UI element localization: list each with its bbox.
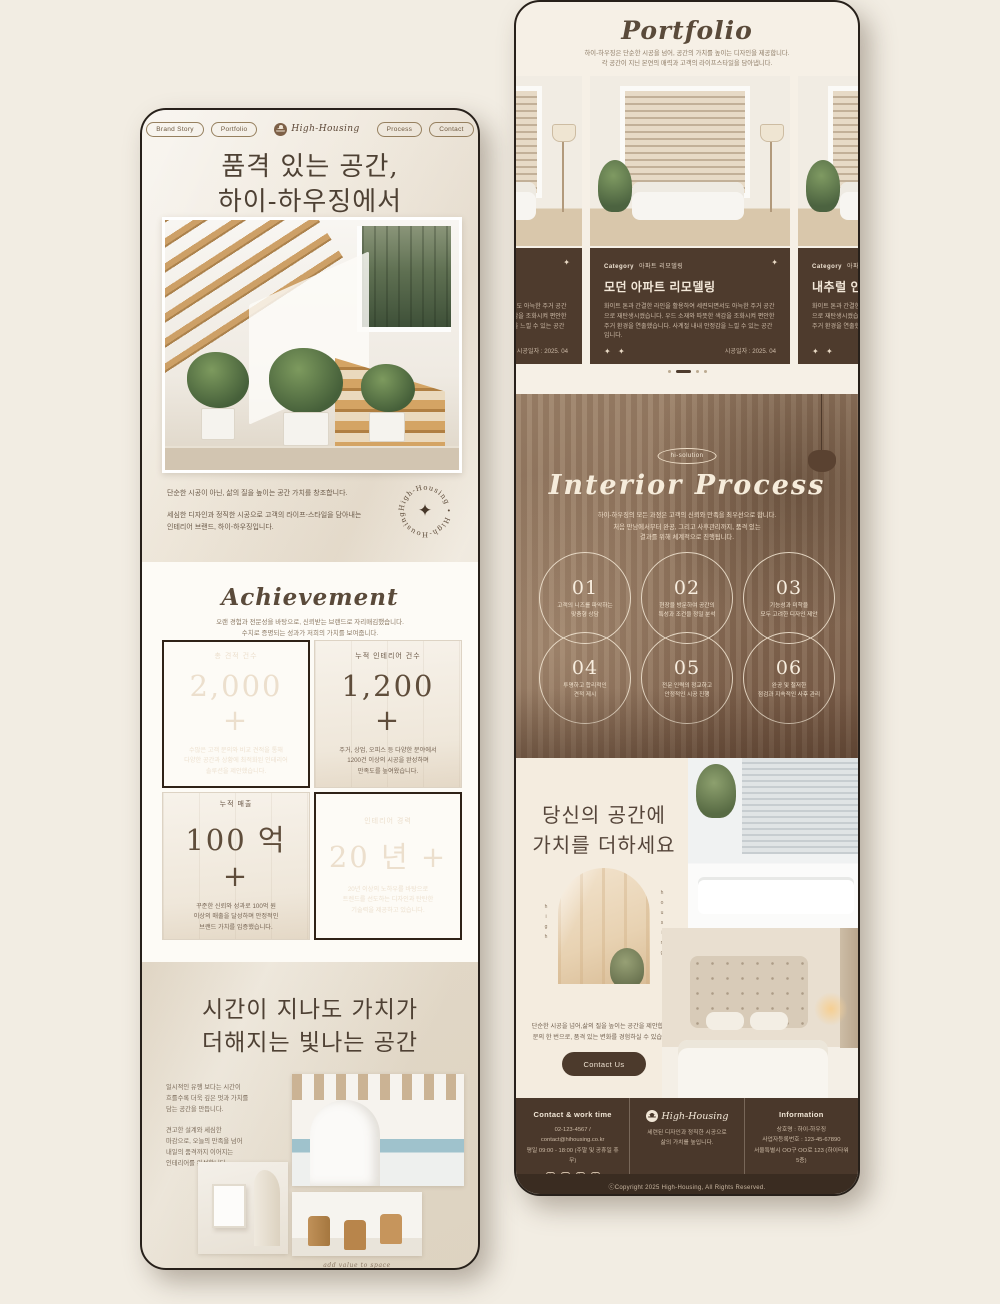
hero-image — [162, 217, 462, 473]
stat-value: 100 억 + — [173, 817, 299, 893]
value-section-title: 시간이 지나도 가치가 더해지는 빛나는 공간 — [142, 994, 478, 1061]
copyright-bar: ⓒCopyright 2025 High-Housing, All Rights… — [516, 1174, 858, 1196]
process-step-2: 02 현장을 방문하여 공간의 특성과 조건을 정밀 분석 — [641, 552, 733, 644]
plant — [598, 160, 632, 212]
hanging-lamp-icon — [808, 450, 836, 472]
footer-info-title: Information — [753, 1110, 850, 1119]
process-subtitle-2: 처음 만남에서부터 완공, 그리고 사후관리까지, 품격 있는 결과를 위해 체… — [516, 523, 858, 543]
process-subtitle-1: 하이-하우징의 모든 과정은 고객의 신뢰와 만족을 최우선으로 합니다. — [516, 510, 858, 519]
stat-card-projects: 누적 인테리어 건수 1,200 + 주거, 상업, 오피스 등 다양한 분야에… — [314, 640, 462, 788]
plant — [806, 160, 840, 212]
brand-logo[interactable]: High-Housing — [274, 123, 359, 136]
floor — [165, 446, 459, 470]
portfolio-card-title: 모던 아파트 리모델링 — [604, 278, 776, 295]
sunset-logo-icon — [274, 123, 287, 136]
bedroom-photo — [662, 928, 858, 1098]
bathroom-photo — [688, 758, 858, 928]
process-step-1: 01 고객의 니즈를 파악하는 맞춤형 상담 — [539, 552, 631, 644]
sofa — [514, 182, 536, 220]
step-caption: 전문 인력의 정교하고 안정적인 시공 진행 — [662, 682, 712, 700]
white-room-photo — [198, 1162, 288, 1254]
hero-paragraph-1: 단순한 시공이 아닌, 삶의 질을 높이는 공간 가치를 창조합니다. — [167, 488, 372, 501]
footer-info-column: Information 상호명 : 하이-하우징 사업자등록번호 : 123-4… — [745, 1098, 858, 1174]
hero-paragraph-2: 세심한 디자인과 정직한 시공으로 고객의 라이프-스타일을 담아내는 인테리어… — [167, 510, 372, 535]
hero-copy: 단순한 시공이 아닌, 삶의 질을 높이는 공간 가치를 창조합니다. 세심한 … — [167, 488, 372, 535]
process-title: Interior Process — [516, 470, 858, 501]
stat-card-revenue: 누적 매출 100 억 + 꾸준한 신뢰와 성과로 100억 원 이상의 매출을… — [162, 792, 310, 940]
achievement-subtitle: 오랜 경험과 전문성을 바탕으로, 신뢰받는 브랜드로 자리매김했습니다. 수치… — [142, 618, 478, 639]
stat-card-experience: 인테리어 경력 20 년 + 20년 이상의 노하우를 바탕으로 트렌드를 선도… — [314, 792, 462, 940]
step-caption: 고객의 니즈를 파악하는 맞춤형 상담 — [557, 602, 613, 620]
cta-title: 당신의 공간에 가치를 더하세요 — [516, 800, 692, 860]
plant — [187, 352, 249, 408]
footer-contact-column: Contact & work time 02-123-4567 / contac… — [516, 1098, 629, 1174]
window-trees — [357, 226, 451, 332]
plant — [269, 348, 343, 414]
hero-title: 품격 있는 공간, 하이-하우징에서 — [142, 150, 478, 220]
portfolio-card-title: 내추럴 인테리어 — [812, 278, 860, 295]
step-caption: 투명하고 합리적인 견적 제시 — [563, 682, 606, 700]
portfolio-card-body: 화이트 톤과 간결한 라인을 활용하여 세련되면서도 아늑한 주거 공간으로 재… — [812, 302, 860, 331]
sofa — [840, 182, 860, 220]
process-step-6: 06 완공 및 철저한 점검과 지속적인 사후 관리 — [743, 632, 835, 724]
sparkle-icon: ✦ — [563, 258, 570, 267]
sparkle-star-icon: ✦ — [396, 482, 454, 540]
plant — [361, 364, 415, 412]
staircase-photo — [165, 220, 459, 470]
footer-brand-name: High-Housing — [662, 1111, 729, 1122]
portfolio-card[interactable]: Category아파트 리모델링 내추럴 인테리어 화이트 톤과 간결한 라인을… — [798, 248, 860, 364]
step-caption: 기능성과 미학을 모두 고려한 디자인 제안 — [760, 602, 817, 620]
copyright-text: ⓒCopyright 2025 High-Housing, All Rights… — [608, 1182, 765, 1191]
category-value: 아파트 리모델링 — [847, 264, 860, 270]
stat-label: 누적 인테리어 건수 — [355, 651, 420, 661]
portfolio-photo — [798, 76, 860, 246]
sofa — [632, 182, 744, 220]
portfolio-date: 시공일자 : 2025. 04 — [517, 346, 568, 355]
footer-contact-title: Contact & work time — [524, 1110, 621, 1119]
value-paragraph-1: 일시적인 유행 보다는 시간이 흐를수록 더욱 깊은 멋과 가치를 담는 공간을… — [166, 1082, 282, 1115]
category-label: Category — [604, 264, 634, 270]
footer: Contact & work time 02-123-4567 / contac… — [516, 1098, 858, 1174]
stat-desc: 20년 이상의 노하우를 바탕으로 트렌드를 선도하는 디자인과 탄탄한 기술력… — [343, 885, 434, 916]
arched-photo — [558, 868, 650, 984]
process-steps: 01 고객의 니즈를 파악하는 맞춤형 상담 02 현장을 방문하여 공간의 특… — [539, 552, 835, 726]
category-value: 아파트 리모델링 — [639, 264, 683, 270]
brand-name: High-Housing — [291, 124, 359, 134]
carousel-dot[interactable] — [668, 370, 671, 373]
sparkle-icon: ✦ — [812, 347, 819, 356]
footer-info-line1: 상호명 : 하이-하우징 — [753, 1125, 850, 1135]
sparkle-icon: ✦ — [618, 347, 625, 356]
portfolio-carousel[interactable]: Category아파트 리모델링 모던 아파트 리모델링 화이트 톤과 간결한 … — [514, 76, 860, 364]
portfolio-photo — [514, 76, 582, 246]
stat-value: 1,200 + — [325, 669, 451, 737]
step-number: 04 — [572, 657, 598, 679]
pillows — [706, 1012, 744, 1030]
step-caption: 현장을 방문하여 공간의 특성과 조건을 정밀 분석 — [658, 602, 715, 620]
curtain — [840, 928, 858, 1048]
portfolio-date: 시공일자 : 2025. 04 — [725, 346, 776, 355]
category-label: Category — [812, 264, 842, 270]
nav-brand-story[interactable]: Brand Story — [146, 122, 204, 137]
portfolio-category: Category아파트 리모델링 — [514, 261, 568, 270]
hi-solution-badge: hi-solution — [658, 448, 717, 464]
bed-sheet — [678, 1040, 828, 1098]
top-nav: Brand Story Portfolio High-Housing Proce… — [142, 119, 478, 139]
portfolio-category: Category아파트 리모델링 — [604, 261, 776, 270]
footer-brand-column: High-Housing 세련된 디자인과 정직한 시공으로 삶의 가치를 높입… — [629, 1098, 744, 1174]
step-number: 05 — [674, 657, 700, 679]
achievement-grid: 총 견적 건수 2,000 + 수많은 고객 문의와 비교 견적을 통해 다양한… — [162, 640, 462, 940]
carousel-dot[interactable] — [696, 370, 699, 373]
sparkle-icon: ✦ — [771, 258, 778, 267]
stat-value: 20 년 + — [329, 834, 447, 876]
sparkle-icon: ✦ — [604, 347, 611, 356]
portfolio-item[interactable]: Category아파트 리모델링 모던 아파트 리모델링 화이트 톤과 간결한 … — [590, 76, 790, 364]
portfolio-card-body: 화이트 톤과 간결한 라인을 활용하여 세련되면서도 아늑한 주거 공간으로 재… — [604, 302, 776, 341]
step-number: 02 — [674, 577, 700, 599]
planter-pot — [201, 408, 235, 440]
portfolio-category: Category아파트 리모델링 — [812, 261, 860, 270]
footer-contact-line2: 평일 09:00 - 18:00 (주말 및 공휴일 휴무) — [524, 1146, 621, 1167]
portfolio-subtitle: 하이-하우징은 단순한 시공을 넘어, 공간의 가치를 높이는 디자인을 제공합… — [516, 49, 858, 69]
footer-info-line3: 서울특별시 OO구 OO로 123 (하이타워 5층) — [753, 1146, 850, 1167]
plant — [696, 764, 736, 818]
lamp-glow — [814, 992, 848, 1026]
sunset-logo-icon — [646, 1110, 658, 1122]
vertical-text-high: high — [543, 904, 549, 944]
stat-label: 누적 매출 — [220, 799, 253, 809]
achievement-section: Achievement 오랜 경험과 전문성을 바탕으로, 신뢰받는 브랜드로 … — [142, 562, 478, 962]
stat-value: 2,000 + — [174, 669, 298, 737]
white-building-photo — [292, 1074, 464, 1186]
nav-process[interactable]: Process — [377, 122, 423, 137]
cta-section: 당신의 공간에 가치를 더하세요 high housing 단순한 시공을 넘어… — [516, 758, 858, 1098]
process-section: hi-solution Interior Process 하이-하우징의 모든 … — [516, 394, 858, 758]
portfolio-card-title: 모던 아파트 리모델링 — [514, 278, 568, 295]
stat-desc: 주거, 상업, 오피스 등 다양한 분야에서 1200건 이상의 시공을 완성하… — [339, 746, 436, 777]
left-page: Brand Story Portfolio High-Housing Proce… — [140, 108, 480, 1270]
footer-brand-lockup: High-Housing — [638, 1110, 735, 1122]
achievement-title: Achievement — [142, 584, 478, 611]
value-copy: 일시적인 유행 보다는 시간이 흐를수록 더욱 깊은 멋과 가치를 담는 공간을… — [166, 1082, 282, 1169]
step-caption: 완공 및 철저한 점검과 지속적인 사후 관리 — [758, 682, 820, 700]
process-step-4: 04 투명하고 합리적인 견적 제시 — [539, 632, 631, 724]
carousel-dot-active[interactable] — [676, 370, 691, 373]
portfolio-item[interactable]: Category아파트 리모델링 모던 아파트 리모델링 화이트 톤과 간결한 … — [514, 76, 582, 364]
floor-lamp — [562, 138, 564, 212]
nav-contact[interactable]: Contact — [429, 122, 474, 137]
step-number: 03 — [776, 577, 802, 599]
process-step-3: 03 기능성과 미학을 모두 고려한 디자인 제안 — [743, 552, 835, 644]
portfolio-photo — [590, 76, 790, 246]
stat-label: 총 견적 건수 — [214, 651, 257, 661]
step-number: 01 — [572, 577, 598, 599]
planter-pot — [283, 412, 329, 446]
stat-desc: 꾸준한 신뢰와 성과로 100억 원 이상의 매출을 달성하며 안정적인 브랜드… — [194, 902, 279, 933]
rotating-stamp-badge: High-Housing • High-Housing • ✦ — [396, 482, 454, 540]
floor-lamp — [770, 138, 772, 212]
portfolio-card[interactable]: Category아파트 리모델링 모던 아파트 리모델링 화이트 톤과 간결한 … — [514, 248, 582, 364]
portfolio-item[interactable]: Category아파트 리모델링 내추럴 인테리어 화이트 톤과 간결한 라인을… — [798, 76, 860, 364]
hanging-lamp-cord — [821, 394, 822, 452]
step-number: 06 — [776, 657, 802, 679]
carousel-dots[interactable] — [516, 370, 858, 373]
portfolio-card-body: 화이트 톤과 간결한 라인을 활용하여 세련되면서도 아늑한 주거 공간으로 재… — [514, 302, 568, 341]
cta-paragraph: 단순한 시공을 넘어,삶의 질을 높이는 공간을 제안합니다. 문의 한 번으로… — [524, 1022, 684, 1044]
right-page: Portfolio 하이-하우징은 단순한 시공을 넘어, 공간의 가치를 높이… — [514, 0, 860, 1196]
sparkle-icon: ✦ — [826, 347, 833, 356]
contact-us-button[interactable]: Contact Us — [562, 1052, 646, 1076]
planter-pot — [369, 412, 405, 442]
stat-card-quotes: 총 견적 건수 2,000 + 수많은 고객 문의와 비교 견적을 통해 다양한… — [162, 640, 310, 788]
value-caption: add value to space — [292, 1262, 422, 1269]
footer-brand-tagline: 세련된 디자인과 정직한 시공으로 삶의 가치를 높입니다. — [638, 1128, 735, 1149]
footer-contact-line1: 02-123-4567 / contact@hihousing.co.kr — [524, 1125, 621, 1146]
process-step-5: 05 전문 인력의 정교하고 안정적인 시공 진행 — [641, 632, 733, 724]
portfolio-title: Portfolio — [516, 16, 858, 45]
portfolio-card[interactable]: Category아파트 리모델링 모던 아파트 리모델링 화이트 톤과 간결한 … — [590, 248, 790, 364]
footer-info-line2: 사업자등록번호 : 123-45-67890 — [753, 1135, 850, 1145]
stat-label: 인테리어 경력 — [364, 816, 412, 826]
wood-stools-photo — [292, 1192, 422, 1256]
carousel-dot[interactable] — [704, 370, 707, 373]
stat-desc: 수많은 고객 문의와 비교 견적을 통해 다양한 공간과 상황에 최적화된 인테… — [184, 746, 288, 777]
nav-portfolio[interactable]: Portfolio — [211, 122, 258, 137]
